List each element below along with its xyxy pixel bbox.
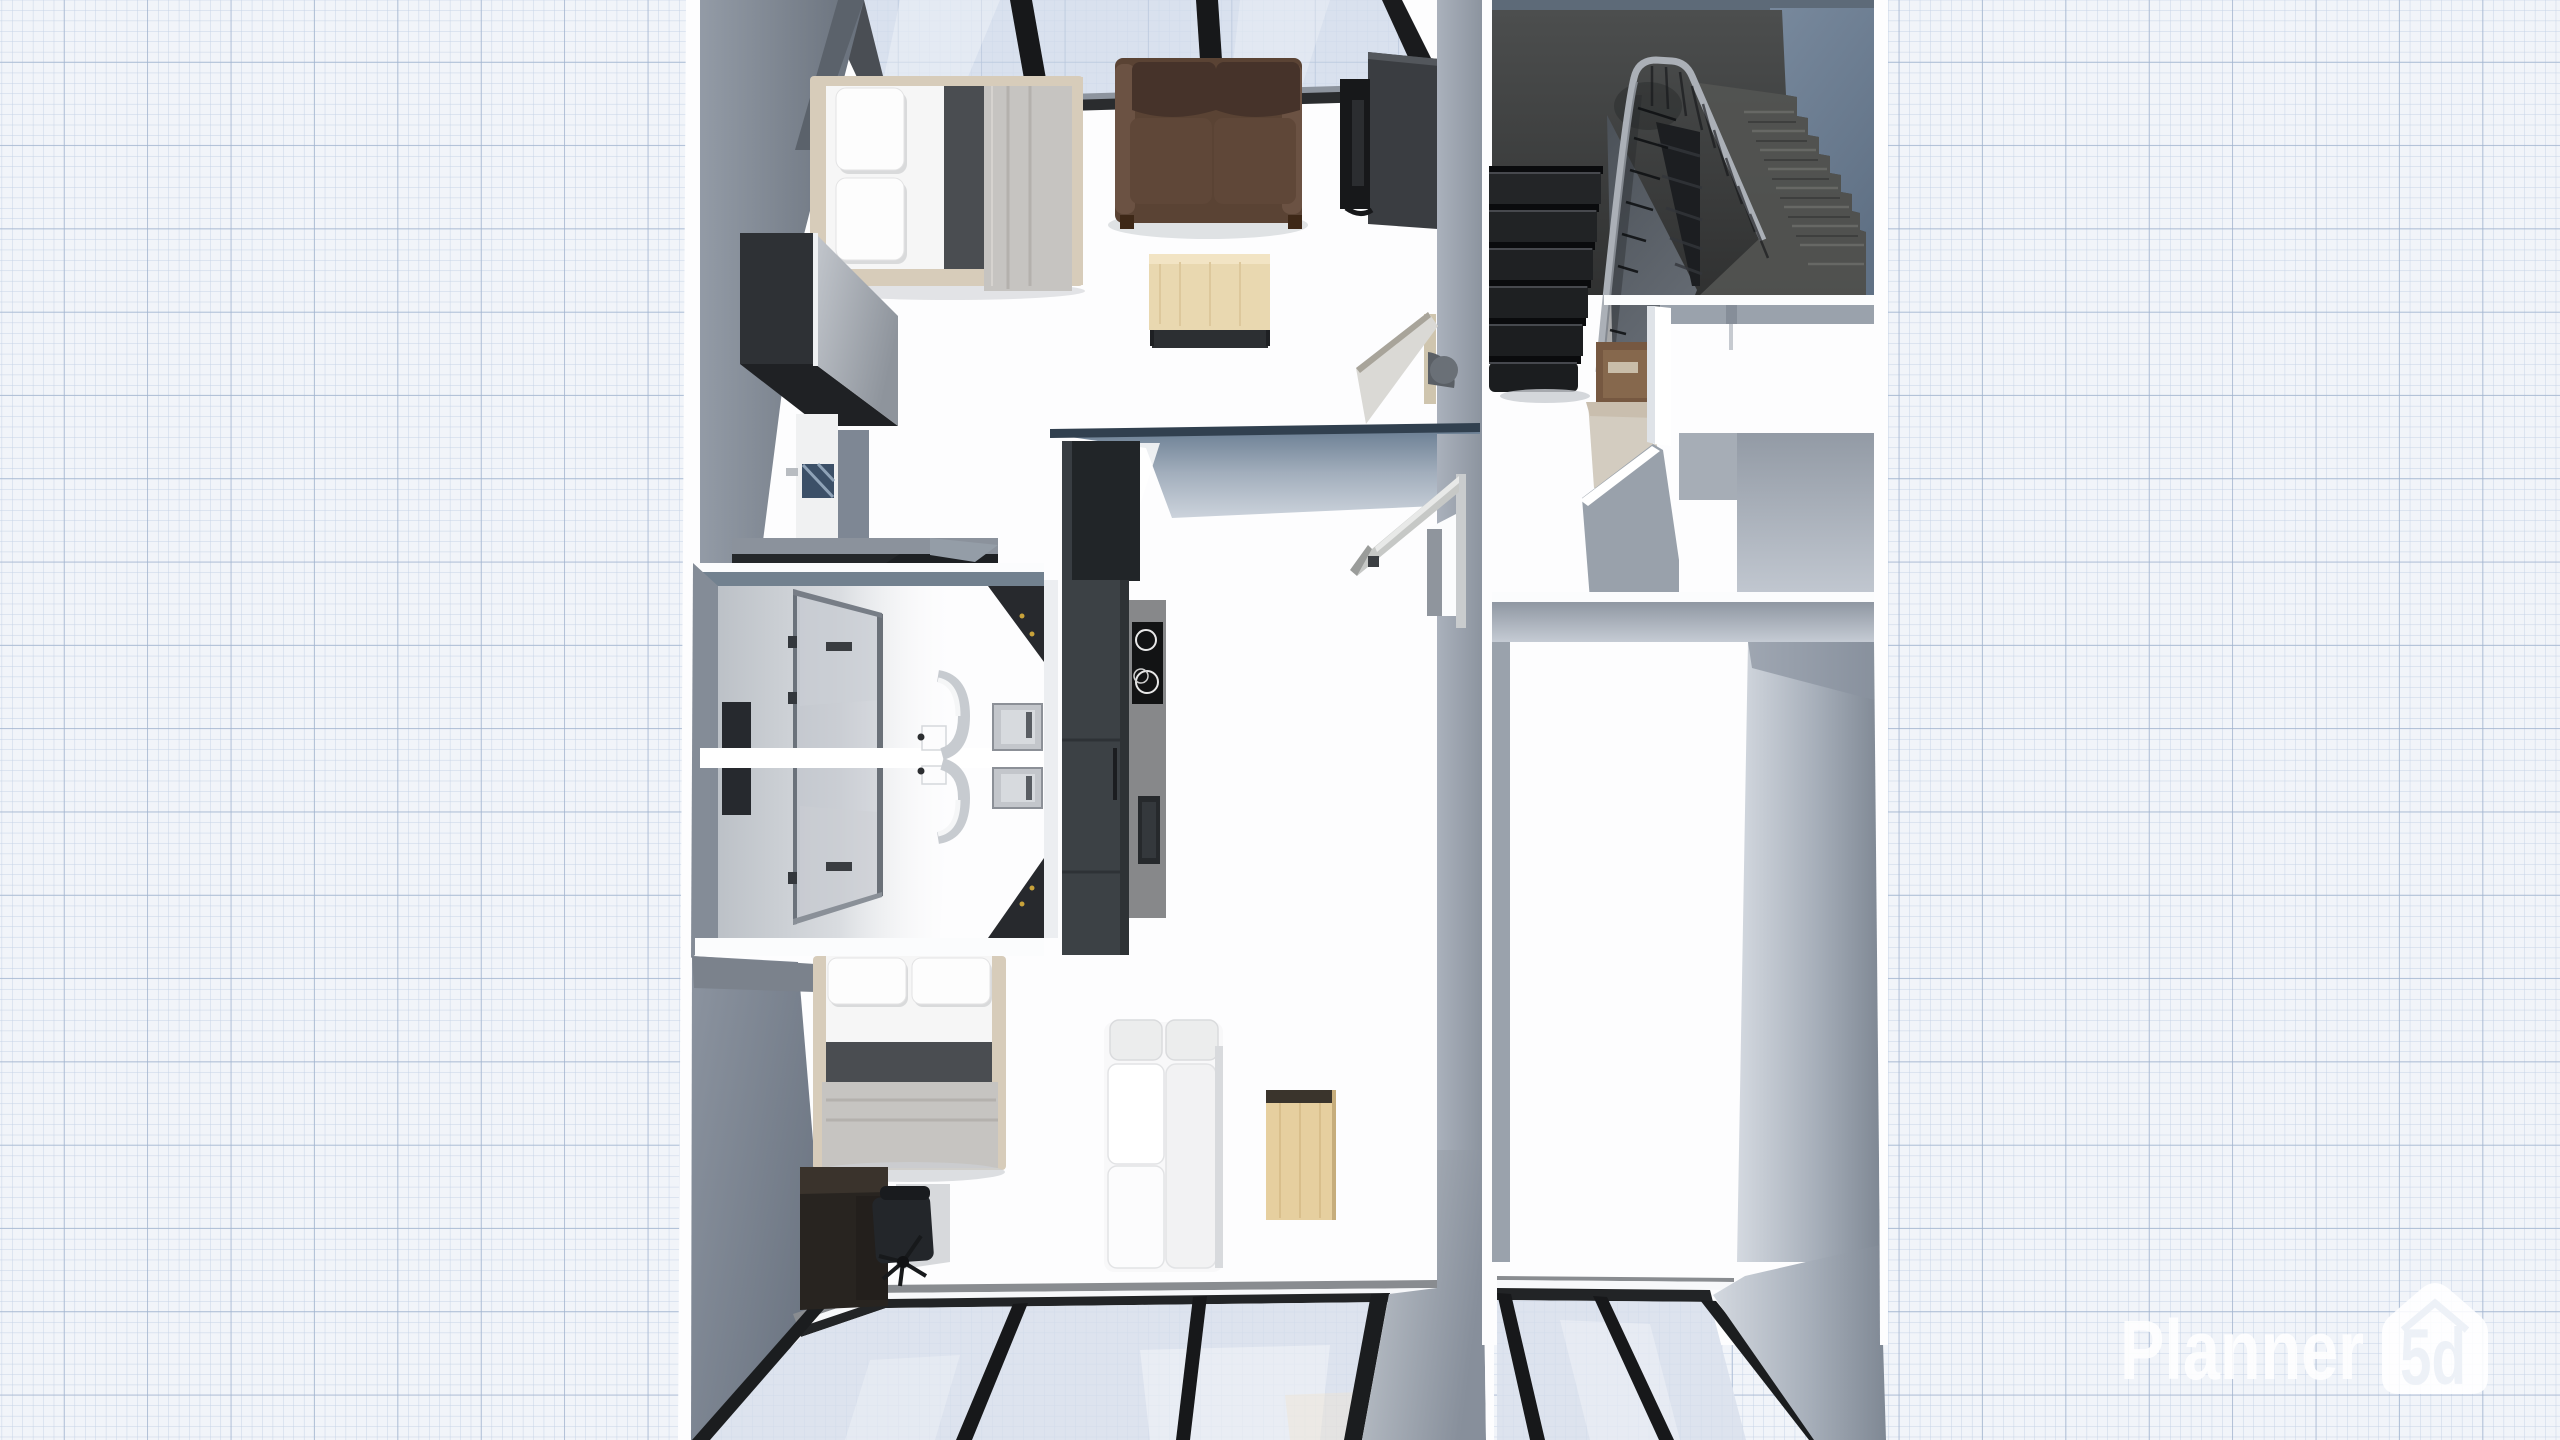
svg-text:5d: 5d	[2400, 1312, 2466, 1401]
svg-text:Planner: Planner	[2120, 1303, 2364, 1397]
